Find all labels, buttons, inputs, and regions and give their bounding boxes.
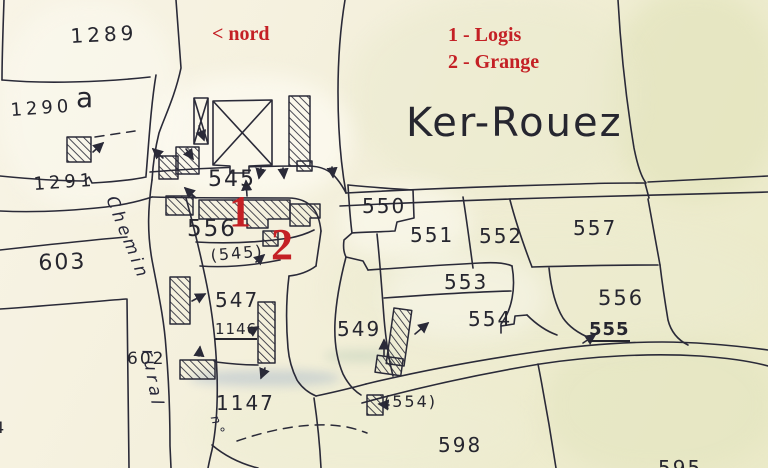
north-indicator: < nord: [212, 24, 270, 44]
parcel-label-547: 547: [215, 290, 259, 310]
legend-item-logis: 1 - Logis: [448, 25, 521, 45]
parcel-label-549: 549: [337, 319, 381, 339]
building-1290: [67, 137, 91, 162]
legend-item-grange: 2 - Grange: [448, 52, 539, 72]
place-name-title: Ker-Rouez: [406, 103, 623, 143]
parcel-label-551: 551: [410, 225, 454, 245]
parcel-label-556-east: 556: [598, 288, 644, 309]
building-602: [180, 360, 215, 379]
building-barn-annex: [297, 161, 312, 171]
parcel-label-603: 603: [38, 251, 87, 275]
building-roadside-547: [170, 277, 190, 324]
parcel-label-554b: (554): [384, 394, 437, 410]
building-549-low: [375, 355, 403, 375]
parcel-label-552: 552: [479, 226, 523, 246]
crossed-buildings: [194, 98, 272, 173]
parcel-label-598: 598: [438, 435, 482, 455]
building-yard-b: [159, 156, 178, 179]
parcel-label-1290a: a: [76, 84, 95, 112]
parcel-label-1147: 1147: [216, 393, 275, 413]
building-554b: [367, 395, 383, 415]
parcel-label-1289: 1289: [70, 22, 138, 45]
building-yard-c: [166, 196, 193, 215]
building-crossed-narrow: [194, 98, 208, 144]
parcel-label-1146: 1146: [215, 322, 257, 340]
parcel-label-1290: 1290: [10, 98, 73, 120]
parcel-label-550: 550: [362, 196, 406, 216]
marker-logis: 1: [229, 190, 251, 234]
building-barn-tall: [289, 96, 310, 166]
parcel-label-557: 557: [573, 218, 617, 238]
parcel-label-1291: 1291: [33, 172, 96, 194]
parcel-label-555: 555: [589, 321, 630, 342]
parcel-label-4-partial: 4: [0, 420, 6, 436]
marker-grange: 2: [271, 223, 293, 267]
parcel-label-553: 553: [444, 272, 488, 292]
parcel-label-554: 554: [468, 309, 512, 329]
building-logis-east: [290, 204, 320, 226]
cadastral-map: 1289 1290 a 1291 603 602 545 556 (545) 5…: [0, 0, 768, 468]
building-crossed-large: [213, 100, 272, 173]
parcel-label-545b: (545): [210, 243, 264, 264]
building-1146: [258, 302, 275, 363]
parcel-label-595-partial: 595: [658, 458, 702, 468]
